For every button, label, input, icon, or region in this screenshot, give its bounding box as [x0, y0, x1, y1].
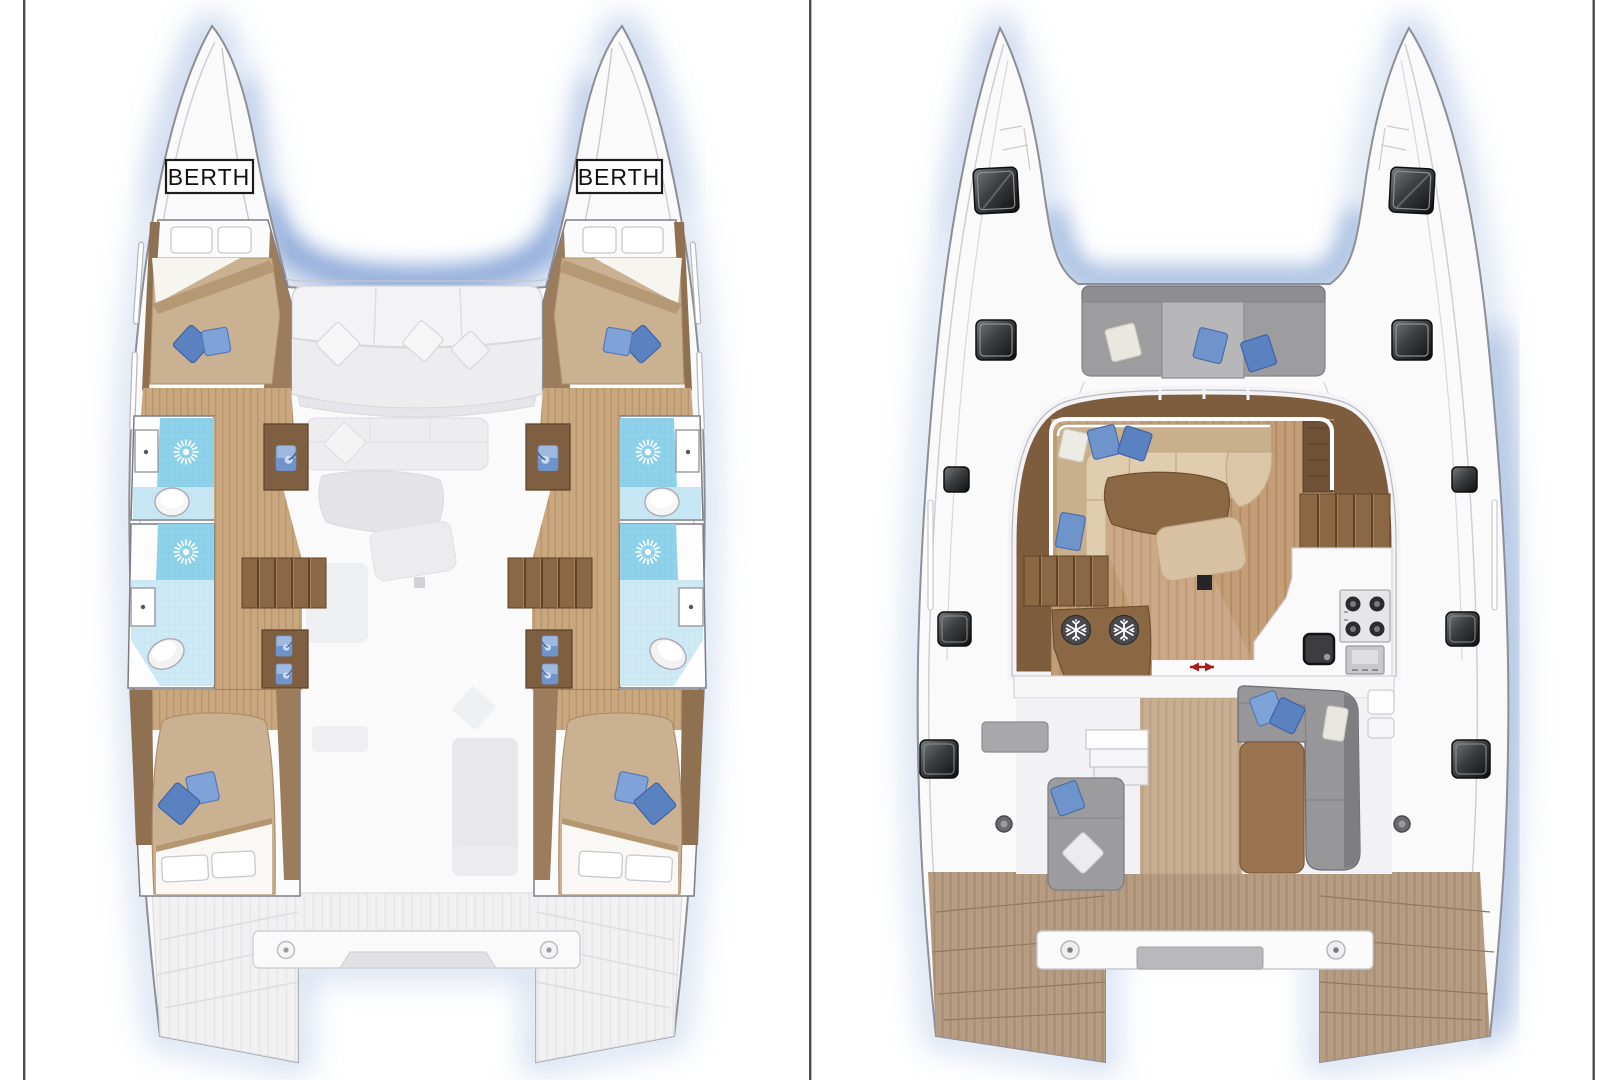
svg-text:BERTH: BERTH — [578, 164, 661, 190]
svg-text:BERTH: BERTH — [168, 164, 251, 190]
